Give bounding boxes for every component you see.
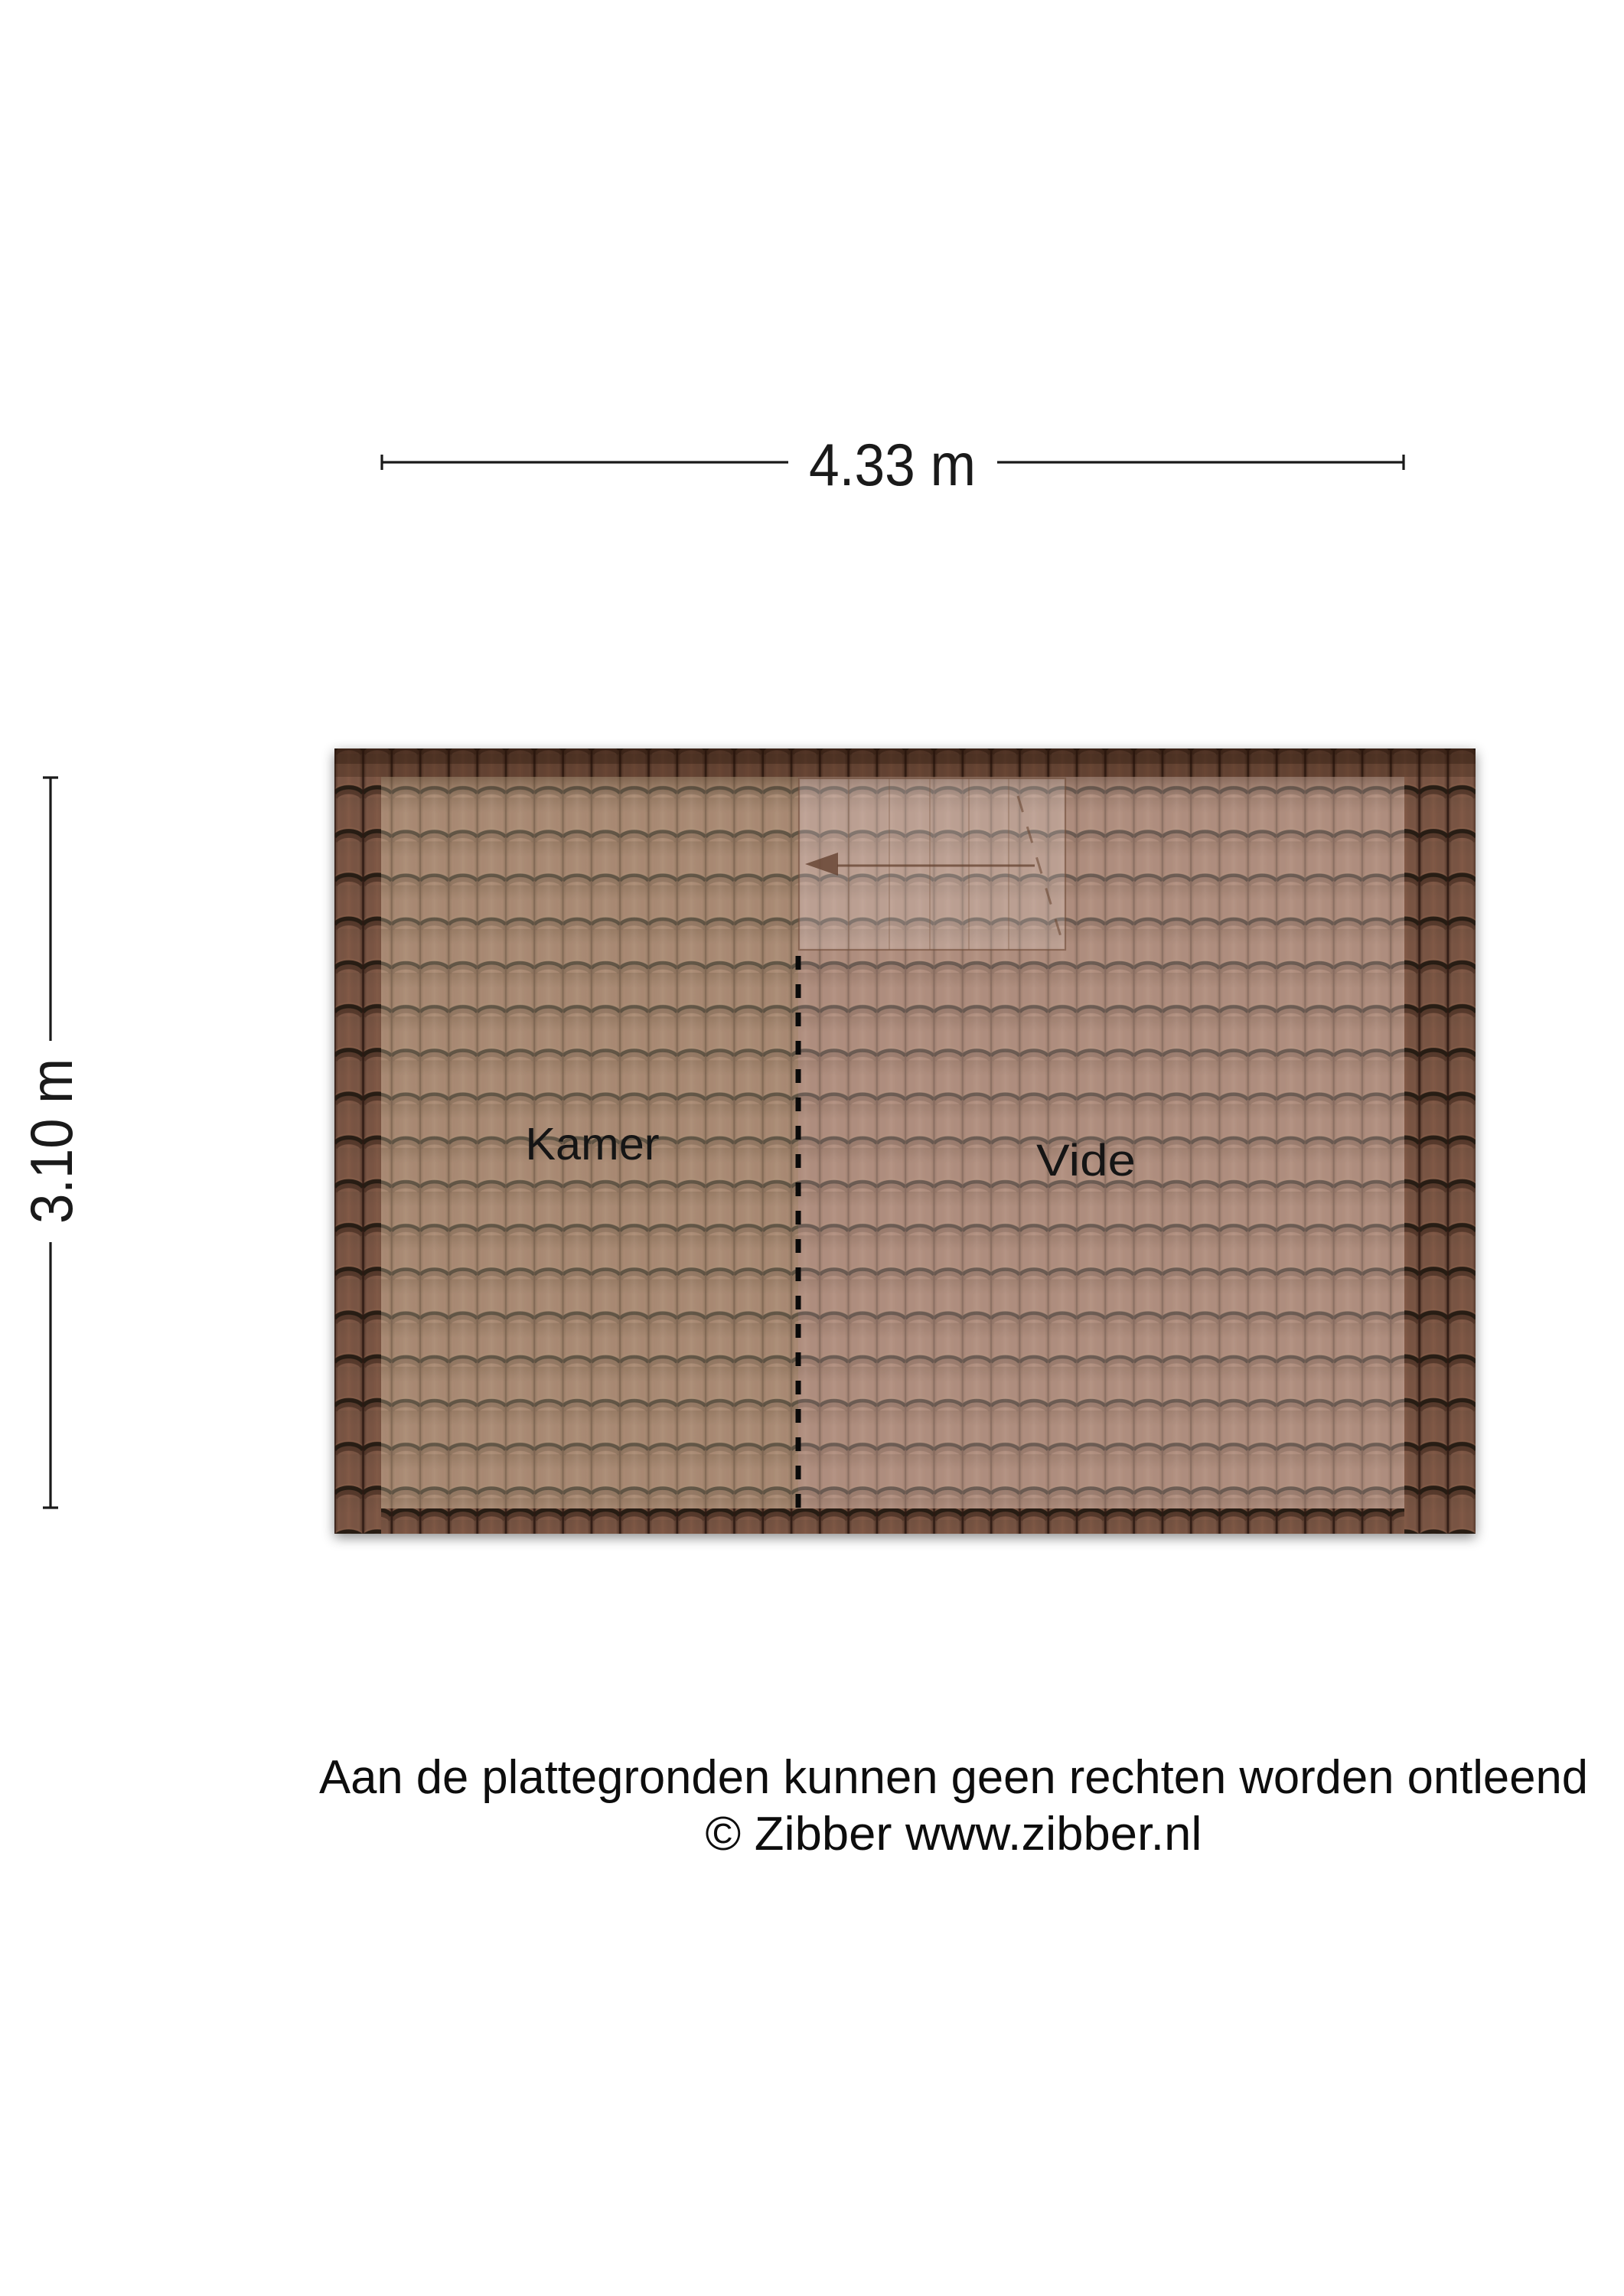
svg-text:© Zibber www.zibber.nl: © Zibber www.zibber.nl [706, 1808, 1202, 1861]
svg-text:Aan de plattegronden kunnen ge: Aan de plattegronden kunnen geen rechten… [319, 1751, 1588, 1804]
svg-text:3.10 m: 3.10 m [18, 1058, 85, 1224]
svg-text:4.33 m: 4.33 m [809, 431, 976, 498]
svg-text:Vide: Vide [1036, 1136, 1136, 1186]
svg-text:Kamer: Kamer [525, 1118, 659, 1169]
